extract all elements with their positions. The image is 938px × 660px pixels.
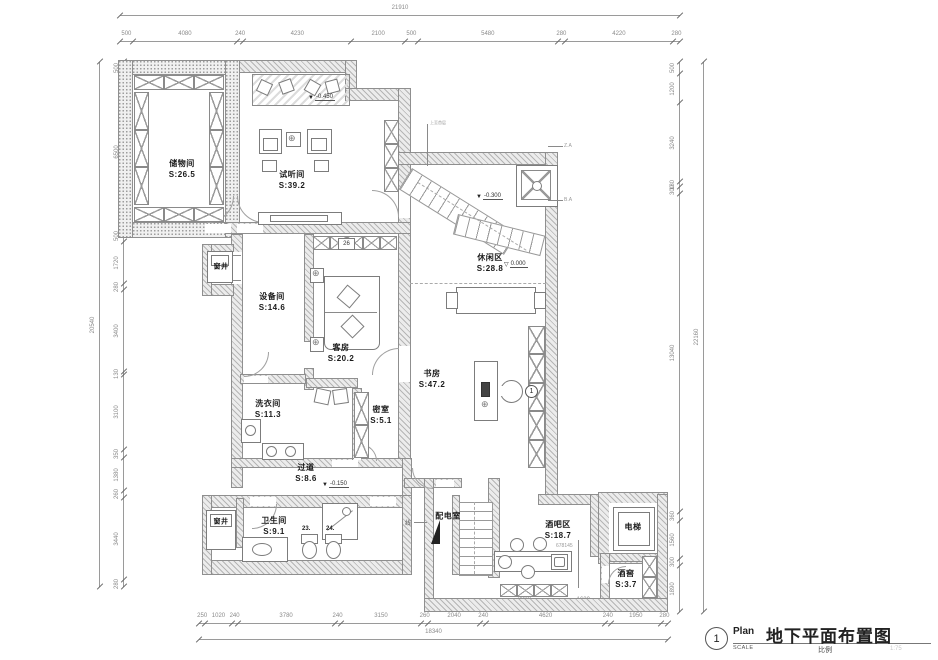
leisure-table-end bbox=[446, 292, 458, 309]
elevation-triangle-icon: ▽ bbox=[504, 262, 509, 268]
laundry-basket bbox=[332, 388, 349, 405]
wall-segment bbox=[398, 152, 558, 165]
desk-chair bbox=[500, 380, 523, 403]
dim-label: 1890 bbox=[670, 582, 676, 595]
cabinet-x-cell bbox=[642, 577, 657, 598]
bar-sink-basin bbox=[554, 557, 565, 567]
cellar-rack bbox=[642, 556, 657, 598]
bar-note: 678145 bbox=[556, 543, 573, 549]
vanity-basin bbox=[252, 543, 272, 556]
room-area: S:28.8 bbox=[477, 264, 504, 275]
room-label-audio: 试听间 S:39.2 bbox=[279, 170, 306, 192]
window-line bbox=[233, 280, 241, 281]
dim-label: 280 bbox=[659, 613, 669, 619]
ceiling-lamp-icon: ⊕ bbox=[312, 269, 320, 278]
dim-bottom-overall: 18340 bbox=[199, 636, 668, 643]
dim-tick bbox=[121, 287, 127, 293]
dim-label: 240 bbox=[235, 31, 245, 37]
dim-tick bbox=[97, 583, 103, 589]
door-swing bbox=[372, 190, 399, 217]
dim-label: 500 bbox=[670, 63, 676, 73]
room-name: 电梯 bbox=[625, 523, 642, 534]
room-area: S:39.2 bbox=[279, 181, 306, 192]
stairwell bbox=[459, 502, 493, 576]
wall-segment bbox=[657, 494, 668, 612]
dim-label: 1380 bbox=[114, 468, 120, 481]
dim-label: 20540 bbox=[90, 316, 96, 333]
dim-label: 3440 bbox=[114, 532, 120, 545]
door-opening bbox=[237, 224, 263, 233]
cabinet-x-cell bbox=[551, 584, 568, 597]
ceiling-lamp-icon: ⊕ bbox=[481, 400, 489, 409]
room-label-power: 配电室 bbox=[435, 512, 461, 523]
dim-label: 4080 bbox=[178, 31, 191, 37]
room-label-secret: 密室 S:5.1 bbox=[370, 405, 392, 427]
room-label-study: 书房 S:47.2 bbox=[419, 369, 446, 391]
dim-tick bbox=[677, 508, 683, 514]
elevation-value: -0.450 bbox=[315, 94, 335, 101]
dim-label: 1720 bbox=[114, 256, 120, 269]
wall-segment bbox=[118, 60, 240, 75]
armchair-cushion bbox=[263, 138, 278, 151]
elevation-value: -0.150 bbox=[329, 481, 349, 488]
dim-line bbox=[99, 62, 100, 587]
door-opening bbox=[370, 497, 396, 506]
cabinet-x-cell bbox=[354, 392, 369, 425]
leader-line bbox=[427, 124, 428, 166]
ottoman bbox=[262, 160, 277, 172]
desk-chair-opening bbox=[498, 386, 503, 396]
desk-monitor bbox=[481, 382, 490, 397]
dim-label: 13040 bbox=[670, 345, 676, 362]
leader-line bbox=[548, 200, 563, 201]
elevation-triangle-icon: ▼ bbox=[322, 482, 328, 488]
dim-label: 250 bbox=[197, 613, 207, 619]
dim-tick bbox=[97, 58, 103, 64]
dim-tick bbox=[121, 577, 127, 583]
door-opening bbox=[332, 460, 358, 467]
dim-tick bbox=[677, 58, 683, 64]
cabinet-x-cell bbox=[528, 440, 545, 468]
room-label-cellar: 酒窖 S:3.7 bbox=[615, 569, 637, 591]
cabinet-x-cell bbox=[134, 75, 164, 90]
stair-note: 上至首层 bbox=[430, 120, 446, 126]
door-opening bbox=[399, 346, 410, 382]
dim-left-overall: 20540 bbox=[96, 62, 103, 587]
dim-label: 500 bbox=[406, 31, 416, 37]
detail-marker: 1 bbox=[525, 385, 538, 398]
drawing-number: 1 bbox=[713, 633, 719, 645]
cabinet-x-cell bbox=[134, 207, 164, 222]
dim-label: 260 bbox=[420, 613, 430, 619]
cabinet-26-label: 26 bbox=[343, 241, 350, 247]
dim-label: 3100 bbox=[114, 406, 120, 419]
cabinet-x-cell bbox=[164, 75, 194, 90]
room-name: 窗井 bbox=[214, 262, 229, 271]
storage-cabinet-left bbox=[134, 92, 149, 205]
door-swing bbox=[372, 348, 399, 375]
dim-tick bbox=[677, 517, 683, 523]
dim-line bbox=[120, 41, 680, 42]
room-name: 休闲区 bbox=[477, 253, 503, 264]
dim-label: 2100 bbox=[371, 31, 384, 37]
elevation-triangle-icon: ▼ bbox=[476, 194, 482, 200]
drawing-number-circle: 1 bbox=[705, 627, 728, 650]
room-name: 设备间 bbox=[259, 292, 285, 303]
dim-line bbox=[199, 623, 668, 624]
room-area: S:47.2 bbox=[419, 380, 446, 391]
cabinet-x-cell bbox=[194, 207, 224, 222]
dim-label: 300 bbox=[670, 185, 676, 195]
cabinet-x-cell bbox=[642, 556, 657, 577]
cabinet-x-cell bbox=[209, 130, 224, 168]
ottoman bbox=[314, 160, 329, 172]
elevation-triangle-icon: ▼ bbox=[308, 95, 314, 101]
room-label-corridor: 过道 S:8.6 bbox=[295, 463, 317, 485]
room-area: S:8.6 bbox=[295, 474, 317, 485]
dim-label: 130 bbox=[114, 369, 120, 379]
cabinet-x-cell bbox=[209, 92, 224, 130]
dim-label: 4620 bbox=[539, 613, 552, 619]
dim-label: 2040 bbox=[447, 613, 460, 619]
room-label-bathroom: 卫生间 S:9.1 bbox=[261, 516, 287, 538]
dim-tick bbox=[121, 494, 127, 500]
elevation-value: 0.000 bbox=[510, 261, 528, 268]
cabinet-x-cell bbox=[354, 425, 369, 458]
cabinet-x-cell bbox=[384, 168, 399, 192]
cabinet-x-cell bbox=[194, 75, 224, 90]
dim-tick bbox=[121, 239, 127, 245]
wall-segment bbox=[424, 598, 668, 612]
secret-wardrobe bbox=[354, 392, 369, 458]
dim-label: 240 bbox=[478, 613, 488, 619]
dim-label: 3780 bbox=[279, 613, 292, 619]
elevation-marker-leisure: ▽ 0.000 bbox=[504, 261, 528, 268]
cabinet-x-cell bbox=[134, 130, 149, 168]
bed-blanket-line bbox=[325, 312, 377, 313]
dim-label: 3150 bbox=[374, 613, 387, 619]
elevation-marker-hall: ▼ -0.300 bbox=[476, 193, 503, 200]
dim-label: 300 bbox=[670, 557, 676, 567]
room-area: S:14.6 bbox=[259, 303, 286, 314]
cabinet-x-cell bbox=[500, 584, 517, 597]
dim-label: 4230 bbox=[291, 31, 304, 37]
section-flag bbox=[431, 520, 440, 544]
dim-line bbox=[120, 15, 680, 16]
room-area: S:18.7 bbox=[545, 531, 572, 542]
ceiling-lamp-icon: ⊕ bbox=[288, 134, 296, 143]
storage-cabinet-bottom bbox=[134, 207, 224, 222]
room-name: 客房 bbox=[332, 343, 349, 354]
cabinet-26-box: 26 bbox=[338, 238, 355, 250]
power-leader-tag: 线 bbox=[405, 518, 411, 527]
dim-label: 280 bbox=[114, 282, 120, 292]
wall-segment bbox=[239, 60, 357, 73]
dim-tick bbox=[665, 620, 671, 626]
dim-tick bbox=[677, 70, 683, 76]
washer-drum bbox=[285, 446, 296, 457]
cabinet-x-cell bbox=[313, 236, 330, 250]
dim-label: 4220 bbox=[612, 31, 625, 37]
door-opening bbox=[244, 376, 268, 383]
cabinet-x-cell bbox=[363, 236, 380, 250]
dim-label: 21910 bbox=[392, 5, 409, 11]
room-name: 过道 bbox=[298, 463, 315, 474]
dim-label: 18340 bbox=[425, 629, 442, 635]
dim-label: 1560 bbox=[670, 533, 676, 546]
dim-tick bbox=[677, 190, 683, 196]
stair-dash-line bbox=[417, 182, 526, 251]
leader-tag-a: Z.A bbox=[564, 143, 572, 149]
cabinet-x-cell bbox=[517, 584, 534, 597]
bar-stool bbox=[521, 565, 535, 579]
room-name: 洗衣间 bbox=[255, 399, 281, 410]
cabinet-x-cell bbox=[380, 236, 397, 250]
leisure-table bbox=[456, 287, 536, 314]
room-label-window-well-bottom: 窗井 bbox=[214, 517, 229, 526]
dim-label: 280 bbox=[671, 31, 681, 37]
room-label-storage: 储物间 S:26.5 bbox=[169, 159, 196, 181]
toilet-bowl bbox=[326, 541, 341, 559]
dim-tick bbox=[701, 608, 707, 614]
dim-tick bbox=[121, 454, 127, 460]
room-area: S:5.1 bbox=[370, 416, 392, 427]
room-name: 储物间 bbox=[169, 159, 195, 170]
washer-drum bbox=[266, 446, 277, 457]
room-area: S:20.2 bbox=[328, 354, 355, 365]
dim-label: 5480 bbox=[481, 31, 494, 37]
room-name: 密室 bbox=[373, 405, 390, 416]
dim-label: 3240 bbox=[670, 136, 676, 149]
dim-right-overall: 22160 bbox=[700, 62, 707, 612]
cabinet-x-cell bbox=[528, 411, 545, 439]
dim-label: 240 bbox=[230, 613, 240, 619]
dim-label: 360 bbox=[670, 511, 676, 521]
dim-label: 240 bbox=[603, 613, 613, 619]
wall-segment bbox=[118, 60, 133, 238]
storage-cabinet-top bbox=[134, 75, 224, 90]
cabinet-x-cell bbox=[528, 326, 545, 354]
wall-segment bbox=[424, 478, 434, 610]
wall-segment bbox=[202, 560, 412, 575]
room-label-window-well-top: 窗井 bbox=[214, 262, 229, 271]
shower-head bbox=[342, 507, 351, 516]
cabinet-x-cell bbox=[384, 144, 399, 168]
scale-word: SCALE bbox=[733, 645, 754, 651]
room-area: S:9.1 bbox=[263, 527, 285, 538]
dim-tick bbox=[677, 38, 683, 44]
window-line bbox=[233, 255, 241, 256]
room-name: 窗井 bbox=[214, 517, 229, 526]
bar-stool bbox=[510, 538, 524, 552]
wall-segment bbox=[402, 495, 412, 575]
dim-tick bbox=[677, 562, 683, 568]
room-name: 书房 bbox=[423, 369, 440, 380]
room-label-bar: 酒吧区 S:18.7 bbox=[545, 520, 572, 542]
room-label-laundry: 洗衣间 S:11.3 bbox=[255, 399, 281, 421]
dim-label: 280 bbox=[556, 31, 566, 37]
room-name: 试听间 bbox=[279, 170, 305, 181]
fan-hub bbox=[532, 181, 542, 191]
cabinet-x-cell bbox=[164, 207, 194, 222]
dim-bottom-segments: 2501020240378024031502602040240462024019… bbox=[199, 620, 668, 627]
dim-label: 1020 bbox=[212, 613, 225, 619]
room-area: S:3.7 bbox=[615, 580, 637, 591]
dim-label: 280 bbox=[114, 579, 120, 589]
room-area: S:26.5 bbox=[169, 170, 196, 181]
fixture-tag-24: 24. bbox=[326, 526, 334, 532]
cabinet-x-cell bbox=[134, 167, 149, 205]
room-name: 酒吧区 bbox=[545, 520, 571, 531]
dim-label: 1200 bbox=[670, 82, 676, 95]
elevation-value: -0.300 bbox=[483, 193, 503, 200]
armchair-cushion bbox=[311, 138, 327, 151]
detail-number: 1 bbox=[530, 388, 534, 395]
storage-cabinet-right bbox=[209, 92, 224, 205]
ceiling-lamp-icon: ⊕ bbox=[312, 338, 320, 347]
bar-dim-line bbox=[578, 540, 579, 588]
dim-top-overall: 21910 bbox=[120, 12, 680, 19]
door-opening bbox=[205, 224, 231, 233]
dim-tick bbox=[121, 488, 127, 494]
dim-tick bbox=[677, 12, 683, 18]
drawing-title: 地下平面布置图 bbox=[766, 622, 892, 647]
dim-tick bbox=[665, 636, 671, 642]
elevation-marker-corridor: ▼ -0.150 bbox=[322, 481, 349, 488]
laundry-sink-basin bbox=[245, 425, 256, 436]
leisure-dash-line bbox=[410, 283, 546, 284]
laundry-basket bbox=[314, 388, 332, 406]
wall-segment bbox=[306, 378, 358, 388]
dim-line bbox=[199, 639, 668, 640]
audio-shelf bbox=[384, 120, 399, 192]
wall-segment bbox=[304, 234, 314, 342]
dim-tick bbox=[677, 608, 683, 614]
dim-tick bbox=[677, 100, 683, 106]
wall-segment bbox=[398, 88, 411, 468]
dim-tick bbox=[701, 58, 707, 64]
plan-label: Plan bbox=[733, 626, 754, 637]
dim-tick bbox=[121, 583, 127, 589]
room-label-leisure: 休闲区 S:28.8 bbox=[477, 253, 504, 275]
scale-value: 1:75 bbox=[890, 646, 902, 652]
scale-cn-label: 比例 bbox=[818, 645, 832, 655]
dim-label: 3400 bbox=[114, 325, 120, 338]
dim-line bbox=[679, 62, 680, 612]
dim-label: 1950 bbox=[629, 613, 642, 619]
stair-center-line bbox=[474, 502, 475, 574]
bar-cabinet bbox=[500, 584, 568, 597]
room-label-equipment: 设备间 S:14.6 bbox=[259, 292, 286, 314]
room-name: 配电室 bbox=[435, 512, 461, 523]
room-area: S:11.3 bbox=[255, 410, 281, 421]
cabinet-x-cell bbox=[384, 120, 399, 144]
toilet-bowl bbox=[302, 541, 317, 559]
tv-screen bbox=[270, 215, 328, 222]
title-block: 1 Plan SCALE 地下平面布置图 比例 1:75 bbox=[700, 620, 935, 656]
dim-top-segments: 50040802404230210050054802804220280 bbox=[120, 38, 680, 45]
dim-label: 22160 bbox=[694, 329, 700, 346]
floor-plan: 21910 5004080240423021005005480280422028… bbox=[0, 0, 938, 660]
dim-tick bbox=[677, 555, 683, 561]
dim-tick bbox=[121, 446, 127, 452]
leader-tag-b: B.A bbox=[564, 197, 572, 203]
room-name: 卫生间 bbox=[261, 516, 287, 527]
door-opening bbox=[436, 480, 454, 487]
guest-wardrobe bbox=[313, 236, 397, 250]
leader-line bbox=[414, 522, 427, 523]
elevation-marker-audio: ▼ -0.450 bbox=[308, 94, 335, 101]
bar-stool bbox=[498, 555, 512, 569]
fixture-tag-23: 23. bbox=[302, 526, 310, 532]
dim-line bbox=[703, 62, 704, 612]
cabinet-x-cell bbox=[534, 584, 551, 597]
dim-label: 350 bbox=[114, 449, 120, 459]
dim-label: 500 bbox=[121, 31, 131, 37]
leisure-table-end bbox=[534, 292, 546, 309]
cabinet-x-cell bbox=[209, 167, 224, 205]
room-name: 酒窖 bbox=[618, 569, 635, 580]
dim-label: 260 bbox=[114, 489, 120, 499]
leader-line bbox=[548, 146, 563, 147]
room-label-elevator: 电梯 bbox=[625, 523, 642, 534]
dim-right-segments: 500120032401803001304036015603001890 bbox=[676, 62, 683, 612]
cabinet-x-cell bbox=[134, 92, 149, 130]
dim-label: 240 bbox=[333, 613, 343, 619]
cabinet-x-cell bbox=[528, 354, 545, 382]
room-label-guest: 客房 S:20.2 bbox=[328, 343, 355, 365]
